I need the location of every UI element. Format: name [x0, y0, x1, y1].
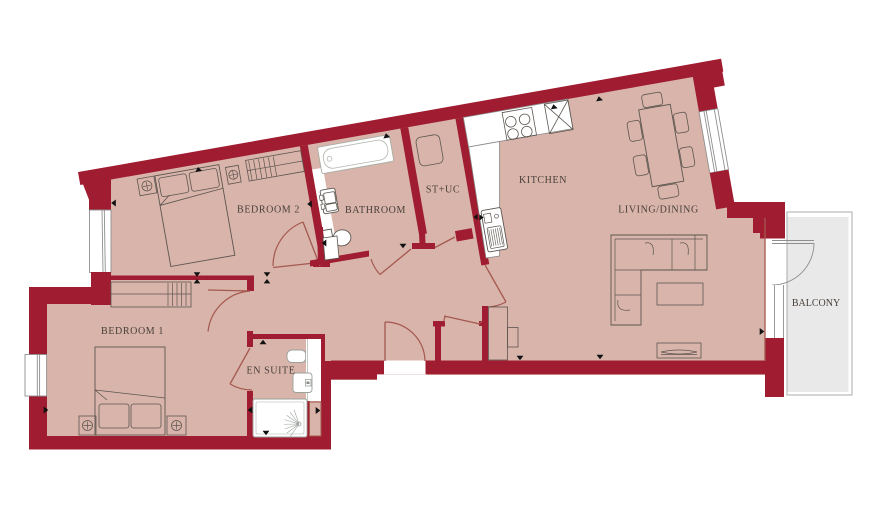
svg-text:KITCHEN: KITCHEN [519, 175, 567, 186]
svg-text:ST+UC: ST+UC [426, 184, 460, 195]
svg-text:EN SUITE: EN SUITE [247, 365, 296, 376]
svg-text:BALCONY: BALCONY [792, 298, 840, 309]
svg-text:LIVING/DINING: LIVING/DINING [618, 204, 699, 215]
svg-text:BEDROOM 2: BEDROOM 2 [237, 205, 300, 216]
svg-text:BATHROOM: BATHROOM [345, 205, 406, 216]
svg-text:BEDROOM 1: BEDROOM 1 [101, 326, 164, 337]
